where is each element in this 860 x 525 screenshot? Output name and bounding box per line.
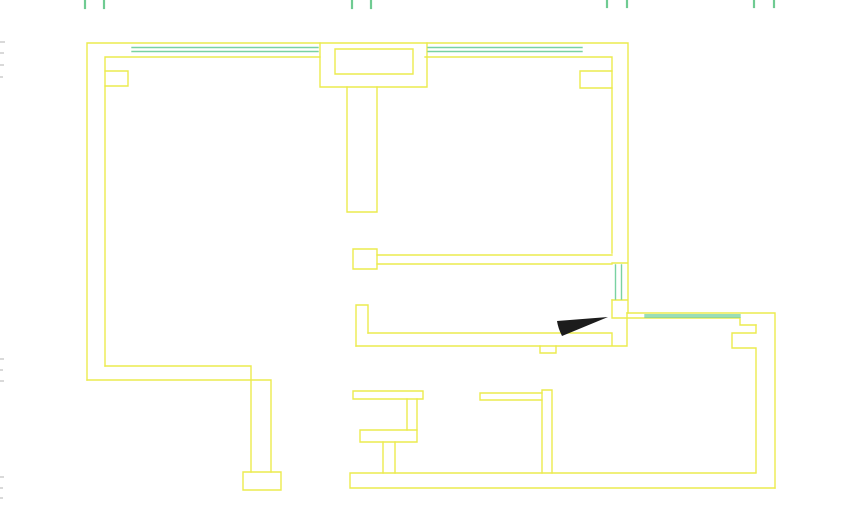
vertical-window-caps — [612, 263, 627, 300]
edge-mark-3 — [0, 76, 3, 78]
mid-band-top-wall — [377, 255, 612, 264]
door-threshold-step — [540, 346, 556, 353]
windows-group — [132, 48, 740, 318]
cad-floor-plan-view — [0, 0, 860, 525]
left-room-bottom-outer — [87, 380, 271, 472]
edge-mark-1 — [0, 52, 4, 54]
bay-inner-rect — [335, 49, 413, 74]
mid-bottom-left-ell — [356, 305, 368, 346]
walls-group — [87, 43, 775, 490]
edge-mark-8 — [0, 487, 3, 489]
center-stem-wall — [347, 87, 377, 212]
right-room-inner-wall-with-pilaster — [732, 325, 756, 472]
window-top-left — [132, 48, 318, 52]
edge-mark-2 — [0, 64, 4, 66]
dimension-ticks-group — [85, 0, 774, 8]
lower-stub-mid-bar — [360, 430, 417, 442]
inner-top-right-segment — [425, 57, 612, 253]
window-right-room — [645, 315, 740, 317]
pilaster-top-right — [580, 71, 612, 88]
lower-stub-top-bar — [353, 391, 423, 399]
right-room-top-and-right-outer — [627, 313, 775, 488]
edge-mark-7 — [0, 476, 4, 478]
mid-bottom-wall — [356, 313, 627, 346]
edge-mark-5 — [0, 369, 3, 371]
mid-band-square-post — [353, 249, 377, 269]
edge-mark-9 — [0, 497, 3, 499]
edge-mark-6 — [0, 380, 4, 382]
window-top-right — [428, 48, 582, 52]
lower-right-partition — [542, 390, 552, 473]
lower-stub-stem — [383, 442, 395, 473]
wall-end-cap — [243, 472, 281, 490]
lower-stub-vertical — [407, 399, 417, 430]
edge-mark-0 — [0, 41, 5, 43]
floor-plan-svg — [0, 0, 860, 525]
lower-right-stub-bar — [480, 393, 542, 400]
left-room-bottom-inner — [105, 366, 251, 472]
edge-mark-4 — [0, 358, 4, 360]
pilaster-top-left — [105, 71, 128, 86]
window-mid-vertical — [616, 265, 622, 299]
bottom-wall — [350, 473, 775, 488]
inner-left-and-top-left — [105, 57, 320, 366]
edge-marks-group — [0, 41, 5, 499]
